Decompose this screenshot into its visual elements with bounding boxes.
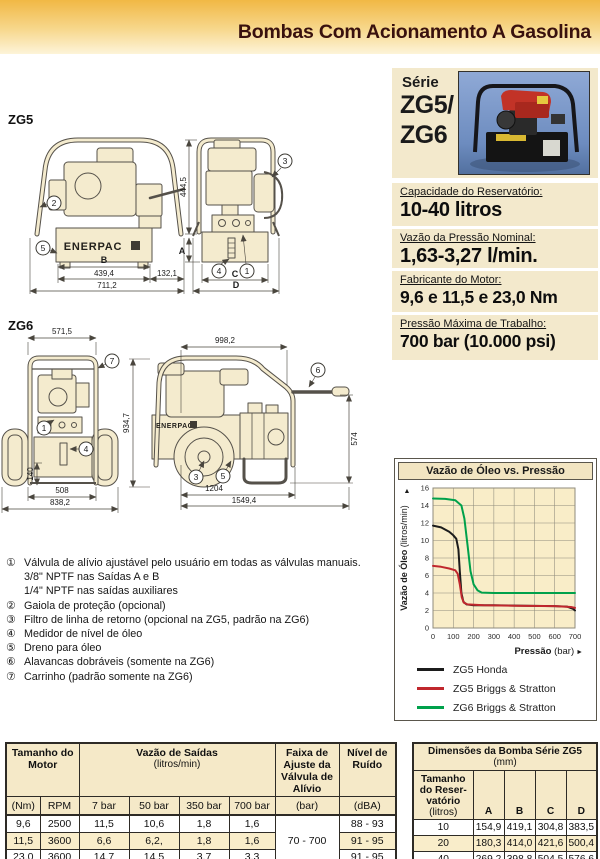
table-cell: 10 <box>413 820 473 836</box>
footnote-text: Gaiola de proteção (opcional) <box>24 599 166 613</box>
chart-plot: 01002003004005006007000246810121416Vazão… <box>395 482 598 660</box>
dim-C: C <box>232 269 239 279</box>
svg-text:4: 4 <box>217 266 222 276</box>
product-photo <box>458 71 590 175</box>
col-group-motor: Tamanho do Motor <box>6 743 79 797</box>
table-cell: 11,5 <box>6 832 40 849</box>
dim-1549: 1549,4 <box>232 496 257 505</box>
svg-text:10: 10 <box>421 536 429 545</box>
table-cell: 1,8 <box>179 815 229 832</box>
footnote-text: 1/4" NPTF nas saídas auxiliares <box>24 584 178 598</box>
dimensions-table: Dimensões da Bomba Série ZG5 (mm)Tamanho… <box>412 742 598 859</box>
zg5-side-view: ENERPAC 2 5 B 439,4 132,1 711,2 <box>30 140 184 294</box>
footnote-marker: ③ <box>6 613 24 627</box>
table-cell: 1,8 <box>179 832 229 849</box>
series-model-zg6: ZG6 <box>400 121 447 150</box>
table-cell: 1,6 <box>229 815 275 832</box>
footnote-text: Dreno para óleo <box>24 641 101 655</box>
legend-item: ZG5 Honda <box>417 660 556 679</box>
svg-text:1: 1 <box>42 423 47 433</box>
svg-text:8: 8 <box>425 554 429 563</box>
dim-1204: 1204 <box>205 484 223 493</box>
zg5-technical-drawing: ENERPAC 2 5 B 439,4 132,1 711,2 <box>0 110 390 310</box>
unit-header: 7 bar <box>79 797 129 816</box>
callout-7: 7 <box>98 354 119 368</box>
spec-value: 1,63-3,27 l/min. <box>400 245 598 268</box>
footnote-row: ③Filtro de linha de retorno (opcional na… <box>6 613 388 627</box>
table-cell: 500,4 <box>566 836 597 852</box>
spec-label: Pressão Máxima de Trabalho: <box>400 318 598 330</box>
footnotes-list: ①Válvula de alívio ajustável pelo usuári… <box>6 556 388 684</box>
dim-A: A <box>179 246 186 256</box>
table-cell: 504,5 <box>535 852 566 859</box>
spec-label: Capacidade do Reservatório: <box>400 186 598 198</box>
svg-text:6: 6 <box>316 365 321 375</box>
noise-cell: 91 - 95 <box>339 849 396 859</box>
dim-711: 711,2 <box>97 281 117 290</box>
dimension-col-header: C <box>535 771 566 820</box>
legend-swatch <box>417 687 444 690</box>
svg-text:12: 12 <box>421 519 429 528</box>
unit-header: 350 bar <box>179 797 229 816</box>
table-cell: 6,2, <box>129 832 179 849</box>
spec-label: Vazão da Pressão Nominal: <box>400 232 598 244</box>
table-cell: 304,8 <box>535 820 566 836</box>
unit-header: RPM <box>40 797 79 816</box>
zg6-technical-drawing: 1 4 7 571,5 140 508 <box>0 325 390 520</box>
svg-text:6: 6 <box>425 571 429 580</box>
flow-vs-pressure-chart: Vazão de Óleo vs. Pressão 01002003004005… <box>394 458 597 721</box>
col-group-noise: Nível de Ruído <box>339 743 396 797</box>
page-title: Bombas Com Acionamento A Gasolina <box>238 21 591 44</box>
table-cell: 3600 <box>40 832 79 849</box>
table-cell: 2500 <box>40 815 79 832</box>
air-cleaner <box>220 369 248 385</box>
footnote-marker: ② <box>6 599 24 613</box>
footnote-marker: ⑥ <box>6 655 24 669</box>
legend-swatch <box>417 668 444 671</box>
spec-value: 9,6 e 11,5 e 23,0 Nm <box>400 287 598 308</box>
dim-444: 444,5 <box>179 176 188 197</box>
svg-text:300: 300 <box>488 632 501 641</box>
unit-header: 50 bar <box>129 797 179 816</box>
motor-output-table: Tamanho do MotorVazão de Saídas(litros/m… <box>5 742 397 859</box>
footnote-text: Filtro de linha de retorno (opcional na … <box>24 613 309 627</box>
pump-head <box>136 184 162 216</box>
table-cell: 11,5 <box>79 815 129 832</box>
reservoir-size-header: Tamanhodo Reser-vatório(litros) <box>413 771 473 820</box>
svg-text:400: 400 <box>508 632 521 641</box>
zg5-front-view: 3 4 1 444,5 A C <box>179 140 292 294</box>
svg-text:2: 2 <box>425 606 429 615</box>
footnote-marker: ① <box>6 556 24 570</box>
dim-508: 508 <box>55 486 69 495</box>
table-cell: 9,6 <box>6 815 40 832</box>
svg-text:1: 1 <box>245 266 250 276</box>
unit-header: (dBA) <box>339 797 396 816</box>
dim-132: 132,1 <box>157 269 178 278</box>
svg-text:100: 100 <box>447 632 460 641</box>
footnote-row: 1/4" NPTF nas saídas auxiliares <box>6 584 388 598</box>
dimension-col-header: B <box>504 771 535 820</box>
footnote-row: ④Medidor de nível de óleo <box>6 627 388 641</box>
col-group-output: Vazão de Saídas(litros/min) <box>79 743 275 797</box>
chart-title: Vazão de Óleo vs. Pressão <box>398 462 593 480</box>
footnote-text: Válvula de alívio ajustável pelo usuário… <box>24 556 361 570</box>
svg-text:16: 16 <box>421 484 429 493</box>
table-cell: 269,2 <box>473 852 504 859</box>
footnote-row: ⑦Carrinho (padrão somente na ZG6) <box>6 670 388 684</box>
spec-label: Fabricante do Motor: <box>400 274 598 286</box>
valve-block <box>139 216 161 228</box>
foot-stand <box>244 459 286 483</box>
dimension-col-header: D <box>566 771 597 820</box>
series-word: Série <box>402 74 439 91</box>
unit-header: 700 bar <box>229 797 275 816</box>
spec-reservoir: Capacidade do Reservatório: 10-40 litros <box>392 183 598 226</box>
svg-text:Vazão de Óleo (litros/min): Vazão de Óleo (litros/min) <box>398 505 409 611</box>
footnote-row: ⑤Dreno para óleo <box>6 641 388 655</box>
table-cell: 421,6 <box>535 836 566 852</box>
svg-text:600: 600 <box>548 632 561 641</box>
engine-block <box>166 371 224 417</box>
svg-text:3: 3 <box>194 472 199 482</box>
footnote-marker <box>6 570 24 584</box>
svg-text:4: 4 <box>425 589 429 598</box>
dim-D: D <box>233 280 240 290</box>
svg-text:2: 2 <box>52 198 57 208</box>
table-cell: 14,5 <box>129 849 179 859</box>
zg6-front-view: 1 4 7 571,5 140 508 <box>2 327 119 513</box>
engine-red-body <box>515 102 549 118</box>
svg-text:4: 4 <box>84 444 89 454</box>
legend-item: ZG6 Briggs & Stratton <box>417 698 556 717</box>
noise-cell: 91 - 95 <box>339 832 396 849</box>
table-cell: 414,0 <box>504 836 535 852</box>
series-panel: Série ZG5/ ZG6 <box>392 68 598 178</box>
table-cell: 10,6 <box>129 815 179 832</box>
table-cell: 3,7 <box>179 849 229 859</box>
dimensions-table-title: Dimensões da Bomba Série ZG5 (mm) <box>413 743 597 771</box>
brand-logo: ENERPAC <box>156 423 193 430</box>
table-cell: 419,1 <box>504 820 535 836</box>
svg-text:14: 14 <box>421 501 429 510</box>
dim-B: B <box>101 255 108 265</box>
recoil-starter <box>497 111 515 129</box>
unit-header: (Nm) <box>6 797 40 816</box>
dim-571: 571,5 <box>52 327 73 336</box>
spec-value: 10-40 litros <box>400 199 598 222</box>
svg-text:0: 0 <box>431 632 435 641</box>
table-cell: 3,3 <box>229 849 275 859</box>
footnote-row: 3/8" NPTF nas Saídas A e B <box>6 570 388 584</box>
relief-range-cell: 70 - 700 <box>275 815 339 859</box>
table-cell: 576,6 <box>566 852 597 859</box>
table-cell: 20 <box>413 836 473 852</box>
engine-label <box>537 96 548 104</box>
noise-cell: 88 - 93 <box>339 815 396 832</box>
svg-text:Pressão (bar) ►: Pressão (bar) ► <box>514 646 583 657</box>
zg6-side-view: ENERPAC 6 3 5 934,7 <box>122 336 359 510</box>
unit-header: (bar) <box>275 797 339 816</box>
footnote-text: Alavancas dobráveis (somente na ZG6) <box>24 655 214 669</box>
dim-998: 998,2 <box>215 336 236 345</box>
callout-6: 6 <box>309 363 325 387</box>
col-group-relief: Faixa de Ajuste da Válvula de Alívio <box>275 743 339 797</box>
svg-text:200: 200 <box>467 632 480 641</box>
svg-text:0: 0 <box>425 624 429 633</box>
table-cell: 23,0 <box>6 849 40 859</box>
catalog-page: Bombas Com Acionamento A Gasolina ZG5 EN… <box>0 0 600 859</box>
dim-838: 838,2 <box>50 498 71 507</box>
table-cell: 154,9 <box>473 820 504 836</box>
engine-shroud <box>208 148 256 171</box>
svg-text:5: 5 <box>41 243 46 253</box>
footnote-marker: ④ <box>6 627 24 641</box>
dim-574: 574 <box>350 432 359 446</box>
table-row: 9,6250011,510,61,81,670 - 70088 - 93 <box>6 815 396 832</box>
chart-legend: ZG5 Honda ZG5 Briggs & Stratton ZG6 Brig… <box>417 660 556 717</box>
table-row: 10154,9419,1304,8383,5 <box>413 820 597 836</box>
table-cell: 40 <box>413 852 473 859</box>
footnote-marker: ⑦ <box>6 670 24 684</box>
footnote-text: 3/8" NPTF nas Saídas A e B <box>24 570 159 584</box>
brand-logo: ENERPAC <box>64 241 123 253</box>
footnote-text: Medidor de nível de óleo <box>24 627 142 641</box>
footnote-row: ②Gaiola de proteção (opcional) <box>6 599 388 613</box>
dim-934: 934,7 <box>122 412 131 433</box>
pump-part <box>551 114 565 124</box>
table-cell: 3600 <box>40 849 79 859</box>
table-cell: 1,6 <box>229 832 275 849</box>
table-cell: 14,7 <box>79 849 129 859</box>
legend-swatch <box>417 706 444 709</box>
dim-439: 439,4 <box>94 269 115 278</box>
dim-140: 140 <box>26 467 35 481</box>
spec-value: 700 bar (10.000 psi) <box>400 331 598 352</box>
footnote-text: Carrinho (padrão somente na ZG6) <box>24 670 193 684</box>
page-header: Bombas Com Acionamento A Gasolina <box>0 0 600 54</box>
spec-flow: Vazão da Pressão Nominal: 1,63-3,27 l/mi… <box>392 229 598 268</box>
table-cell: 180,3 <box>473 836 504 852</box>
series-model-zg5: ZG5/ <box>400 91 454 120</box>
svg-text:3: 3 <box>283 156 288 166</box>
spec-pressure: Pressão Máxima de Trabalho: 700 bar (10.… <box>392 315 598 360</box>
dimension-col-header: A <box>473 771 504 820</box>
footnote-row: ①Válvula de alívio ajustável pelo usuári… <box>6 556 388 570</box>
oil-sight-gauge <box>60 443 67 465</box>
svg-text:7: 7 <box>110 356 115 366</box>
yellow-sticker <box>496 134 526 141</box>
handle-grip <box>332 387 349 396</box>
table-row: 40269,2398,8504,5576,6 <box>413 852 597 859</box>
brand-logo-mark <box>131 241 140 250</box>
return-filter <box>254 174 274 212</box>
svg-text:5: 5 <box>221 471 226 481</box>
svg-text:▲: ▲ <box>404 488 411 495</box>
table-cell: 383,5 <box>566 820 597 836</box>
white-label <box>543 140 560 156</box>
legend-item: ZG5 Briggs & Stratton <box>417 679 556 698</box>
spec-motor: Fabricante do Motor: 9,6 e 11,5 e 23,0 N… <box>392 271 598 312</box>
callout-5: 5 <box>36 241 57 255</box>
recoil-starter <box>75 173 101 199</box>
footnote-marker <box>6 584 24 598</box>
table-cell: 398,8 <box>504 852 535 859</box>
svg-text:700: 700 <box>569 632 582 641</box>
table-cell: 6,6 <box>79 832 129 849</box>
svg-text:500: 500 <box>528 632 541 641</box>
footnote-marker: ⑤ <box>6 641 24 655</box>
table-row: 20180,3414,0421,6500,4 <box>413 836 597 852</box>
footnote-row: ⑥Alavancas dobráveis (somente na ZG6) <box>6 655 388 669</box>
